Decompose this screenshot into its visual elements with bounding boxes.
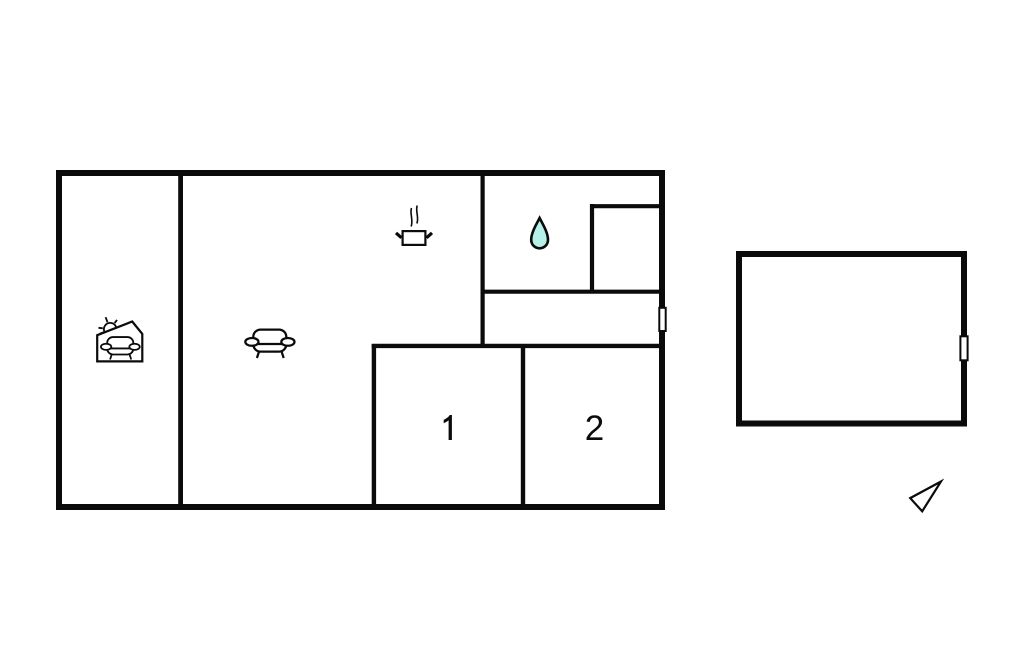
svg-text:2: 2 [585,409,604,448]
